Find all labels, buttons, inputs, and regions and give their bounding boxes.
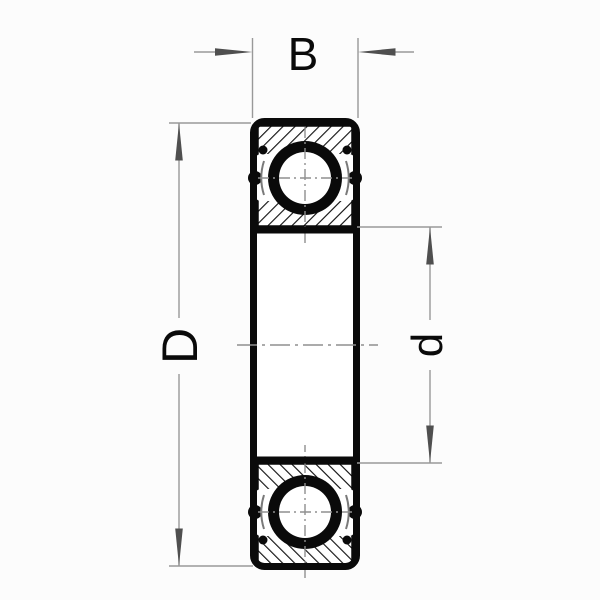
dimension-B: B [194, 28, 414, 118]
drawing-canvas: B D d [0, 0, 600, 600]
bearing-section-bottom [248, 445, 362, 578]
d-outer-arrowhead-down [175, 529, 183, 567]
seal-dot-left-bottom [259, 536, 268, 545]
bearing-dimension-drawing: B D d [0, 0, 600, 600]
b-label: B [288, 28, 319, 80]
seal-dot-left-top [259, 146, 268, 155]
b-arrowhead-left [215, 48, 253, 56]
d-bore-label: d [403, 333, 452, 357]
d-bore-arrowhead-down [426, 426, 434, 464]
seal-dot-right-bottom [343, 536, 352, 545]
d-outer-label: D [152, 328, 208, 364]
seal-dot-right-top [343, 146, 352, 155]
d-outer-arrowhead-up [175, 123, 183, 161]
b-arrowhead-right [358, 48, 396, 56]
d-bore-arrowhead-up [426, 227, 434, 265]
